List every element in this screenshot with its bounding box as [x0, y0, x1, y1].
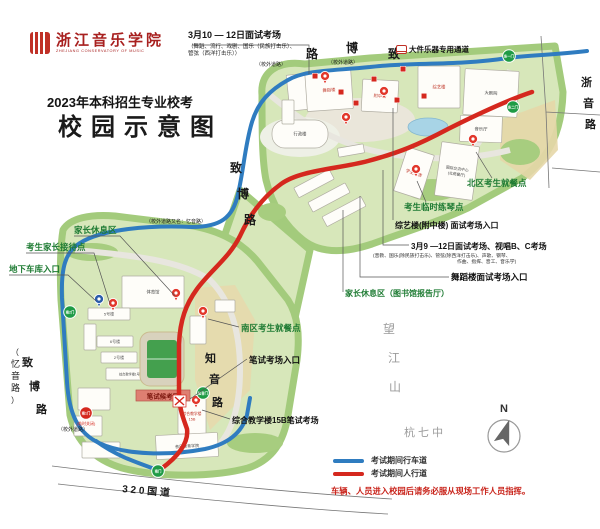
vehicle-route-swatch	[333, 459, 364, 463]
road-label: 博	[346, 40, 358, 55]
building-label: 综合教学楼	[183, 411, 202, 416]
exam-point-marker	[353, 100, 359, 106]
exam-point-marker	[421, 93, 427, 99]
callout-label: 综合教学楼15B笔试考场	[232, 415, 319, 425]
callout-label: 家长休息区（图书馆报告厅）	[345, 288, 449, 298]
building-label: 行政楼	[294, 131, 308, 138]
building-label: 体育馆	[147, 289, 161, 296]
exam-point-marker	[371, 76, 377, 82]
road-line	[552, 168, 600, 172]
gate-label: 南1门	[82, 410, 91, 415]
building-label: 15B	[189, 418, 196, 422]
building: 行政楼	[272, 120, 328, 148]
road-label: 山	[389, 380, 401, 394]
building-label: 6号楼	[110, 338, 120, 344]
road-label: ）	[11, 396, 19, 405]
large-instrument-channel: 大件乐器专用通道	[396, 44, 469, 55]
building: 附中楼	[361, 79, 399, 113]
building: 6号楼	[97, 336, 133, 347]
gate-marker: 南门	[152, 465, 165, 478]
callout-label: 舞蹈楼面试考场入口	[450, 272, 528, 282]
road-label: 路	[11, 382, 20, 393]
road-label: 浙	[581, 75, 592, 89]
campus-map: 舞蹈楼附中楼综艺楼大剧院音乐厅行政楼国际交流中心(北苑餐厅)学生宿舍体育馆5号楼…	[0, 0, 600, 529]
road-label: 望	[383, 322, 395, 336]
gate-marker: 东一门	[503, 50, 516, 63]
exam-note-detail-2: 管弦（西洋打击乐））	[188, 51, 328, 58]
logo-english-name: ZHEJIANG CONSERVATORY OF MUSIC	[56, 49, 164, 53]
building	[215, 300, 235, 312]
page-subtitle: 校园示意图	[58, 107, 223, 142]
building-label: 5号楼	[104, 311, 114, 317]
gate-label: 东一门	[504, 53, 515, 58]
seal-icon	[30, 32, 50, 54]
instrument-channel-label: 大件乐器专用通道	[409, 44, 469, 55]
road-label: 3 2 0 国 道	[122, 482, 171, 499]
compass: N	[488, 403, 520, 452]
road-label: 音	[11, 370, 20, 381]
instrument-channel-icon	[396, 45, 407, 54]
road-label: 杭 七 中	[404, 425, 443, 439]
callout-label: 考生临时练琴点	[404, 202, 464, 212]
road-label: （校外道路又名：忆音路）	[146, 218, 206, 225]
vehicle-route-label: 考试期间行车道	[371, 455, 427, 466]
exam-note-detail-1: （舞蹈、流行、戏剧、国乐（民族打击乐）、	[188, 44, 328, 51]
road-label: 江	[388, 351, 400, 365]
road-label: 路	[244, 212, 257, 227]
gate-status: (临时关闭)	[77, 420, 96, 426]
road-label: 路	[585, 117, 597, 131]
trees	[258, 203, 286, 221]
pedestrian-route-swatch	[333, 472, 364, 476]
road-label: （校外道路）	[58, 426, 88, 433]
exam-point-marker	[312, 73, 318, 79]
building-label: 综艺楼	[433, 84, 447, 91]
callout-label: 作曲、指挥、音工、音乐学)	[457, 258, 517, 265]
building: 综艺楼	[418, 66, 460, 108]
legend-pedestrian-row: 考试期间人行道	[333, 467, 427, 480]
road-label: 博	[237, 186, 249, 201]
gate-label: 东二门	[508, 104, 519, 109]
callout-label: 南区考生就餐点	[241, 323, 301, 333]
road-label: （校外道路）	[328, 59, 358, 66]
logo-chinese-name: 浙江音乐学院	[56, 32, 164, 48]
legend-vehicle-row: 考试期间行车道	[333, 454, 427, 467]
building	[282, 100, 294, 124]
road-label: 致	[22, 355, 34, 369]
callout-label: 地下车库入口	[9, 264, 60, 274]
gate-marker: 南2门	[64, 306, 77, 319]
building-label: 2号楼	[114, 354, 124, 360]
building	[78, 388, 110, 410]
road-label: 路	[36, 402, 48, 416]
gate-label: 南2门	[66, 309, 75, 314]
callout-label: 笔试考场入口	[248, 355, 300, 365]
callout-label: 北区考生就餐点	[467, 178, 527, 188]
callout-label: 考生家长接待点	[26, 242, 86, 252]
road-label: （	[11, 348, 19, 357]
exam-note-title: 3月10 — 12日面试考场	[188, 28, 328, 41]
pedestrian-route-label: 考试期间人行道	[371, 468, 427, 479]
compass-north-label: N	[500, 403, 508, 415]
gate-marker: 东二门	[507, 101, 520, 114]
road-label: 博	[29, 379, 40, 393]
building	[84, 324, 96, 350]
road-label: 致	[230, 160, 243, 175]
campus-map-page: 舞蹈楼附中楼综艺楼大剧院音乐厅行政楼国际交流中心(北苑餐厅)学生宿舍体育馆5号楼…	[0, 0, 600, 529]
exam-point-marker	[394, 97, 400, 103]
callout-label: 3月9 —12日面试考场、视唱B、C考场	[411, 241, 547, 251]
legend: 考试期间行车道 考试期间人行道	[333, 454, 427, 480]
crossing-marker	[173, 395, 186, 407]
road-label: 音	[583, 96, 594, 110]
building: 国际交流中心(北苑餐厅)	[434, 142, 479, 201]
building: 2号楼	[101, 352, 137, 363]
road-label: 知	[204, 351, 216, 365]
march10-12-exam-note: 3月10 — 12日面试考场 （舞蹈、流行、戏剧、国乐（民族打击乐）、 管弦（西…	[188, 28, 328, 58]
callout-label: 家长休息区	[74, 225, 117, 235]
road-label: 路	[212, 395, 224, 409]
gate-label: 南门	[155, 468, 162, 473]
logo: 浙江音乐学院 ZHEJIANG CONSERVATORY OF MUSIC	[30, 32, 164, 54]
callout-label: (音教、国乐(除民族打击乐)、管弦(除西洋打击乐)、声歌、钢琴、	[373, 252, 511, 259]
road-label: 忆	[11, 358, 20, 369]
building	[190, 316, 206, 344]
exam-point-marker	[400, 66, 406, 72]
exam-point-marker	[338, 89, 344, 95]
warning-text: 车辆、人员进入校园后请务必服从现场工作人员指挥。	[331, 485, 530, 497]
building: 5号楼	[88, 308, 130, 320]
callout-label: 综艺楼(附中楼) 面试考场入口	[395, 220, 499, 230]
road-label: （校外道路）	[256, 61, 286, 68]
